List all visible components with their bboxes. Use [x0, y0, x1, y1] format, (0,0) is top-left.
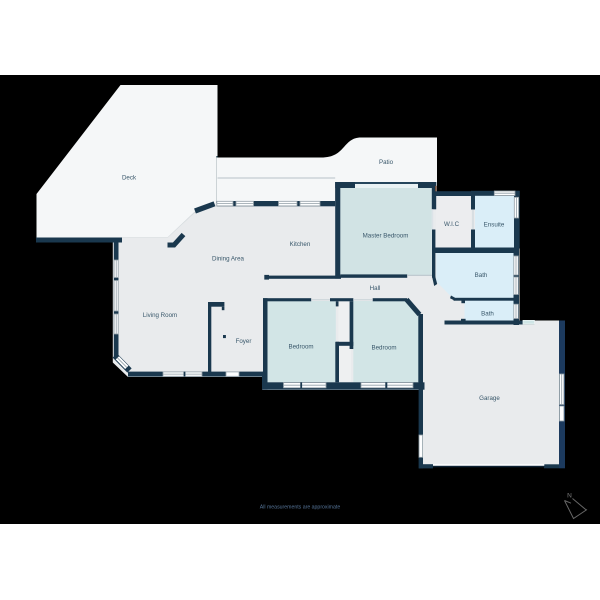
svg-text:Bedroom: Bedroom: [288, 344, 313, 351]
svg-text:Foyer: Foyer: [236, 338, 252, 345]
svg-text:Ensuite: Ensuite: [484, 222, 505, 229]
svg-text:Garage: Garage: [479, 395, 500, 402]
svg-text:All measurements are approxima: All measurements are approximate: [260, 505, 341, 511]
svg-text:Bedroom: Bedroom: [371, 345, 396, 352]
svg-text:Living Room: Living Room: [143, 312, 177, 319]
svg-text:Kitchen: Kitchen: [290, 241, 311, 248]
svg-text:Patio: Patio: [379, 159, 394, 166]
svg-text:W.I.C: W.I.C: [444, 221, 460, 228]
svg-text:Bath: Bath: [481, 311, 494, 318]
svg-text:N: N: [567, 493, 572, 500]
svg-text:Dining Area: Dining Area: [212, 256, 245, 263]
svg-text:Deck: Deck: [122, 175, 137, 182]
svg-text:Bath: Bath: [475, 272, 488, 279]
svg-text:Hall: Hall: [370, 285, 381, 292]
svg-text:Master Bedroom: Master Bedroom: [363, 233, 409, 240]
